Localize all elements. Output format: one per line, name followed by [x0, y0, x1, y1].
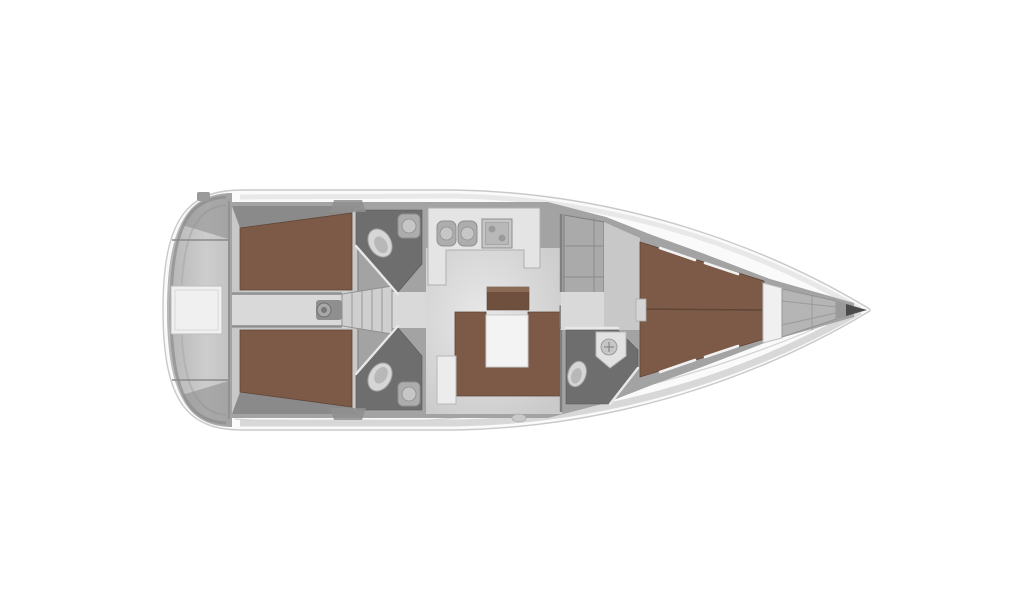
- saloon-sideboard-top: [487, 287, 529, 292]
- wardrobe-body: [564, 215, 604, 303]
- aft-head-starboard-washbasin-bowl: [402, 387, 416, 401]
- stern-deck-fitting: [197, 192, 210, 201]
- galley-stove-top: [486, 223, 509, 245]
- deck-winch-fitting: [512, 414, 526, 422]
- engine-control-center: [321, 307, 327, 313]
- deck-hatch-bottom: [330, 408, 366, 420]
- forward-cabin-floor: [604, 222, 640, 330]
- galley-sink-left-bowl: [440, 227, 453, 240]
- saloon-table: [486, 315, 528, 367]
- bow-bulkhead-panel: [763, 283, 782, 343]
- saloon-side-cabinet: [437, 356, 456, 404]
- galley-sink-right-bowl: [461, 227, 474, 240]
- floorplan-svg: [0, 0, 1024, 600]
- transom-door: [171, 286, 222, 334]
- stove-burner-1: [489, 226, 496, 233]
- aft-head-port-washbasin-bowl: [402, 219, 416, 233]
- stairs-tread-area: [342, 286, 392, 334]
- aft-cabin-port: [232, 206, 358, 292]
- aft-cabin-starboard: [232, 328, 358, 414]
- v-berth-split: [640, 309, 762, 310]
- deck-hatch-top: [330, 200, 366, 212]
- forward-cabin-doorway: [561, 292, 604, 330]
- stove-burner-2: [499, 235, 506, 242]
- boat-floorplan: [0, 0, 1024, 600]
- v-berth-step: [636, 299, 646, 321]
- wardrobe: [564, 215, 604, 303]
